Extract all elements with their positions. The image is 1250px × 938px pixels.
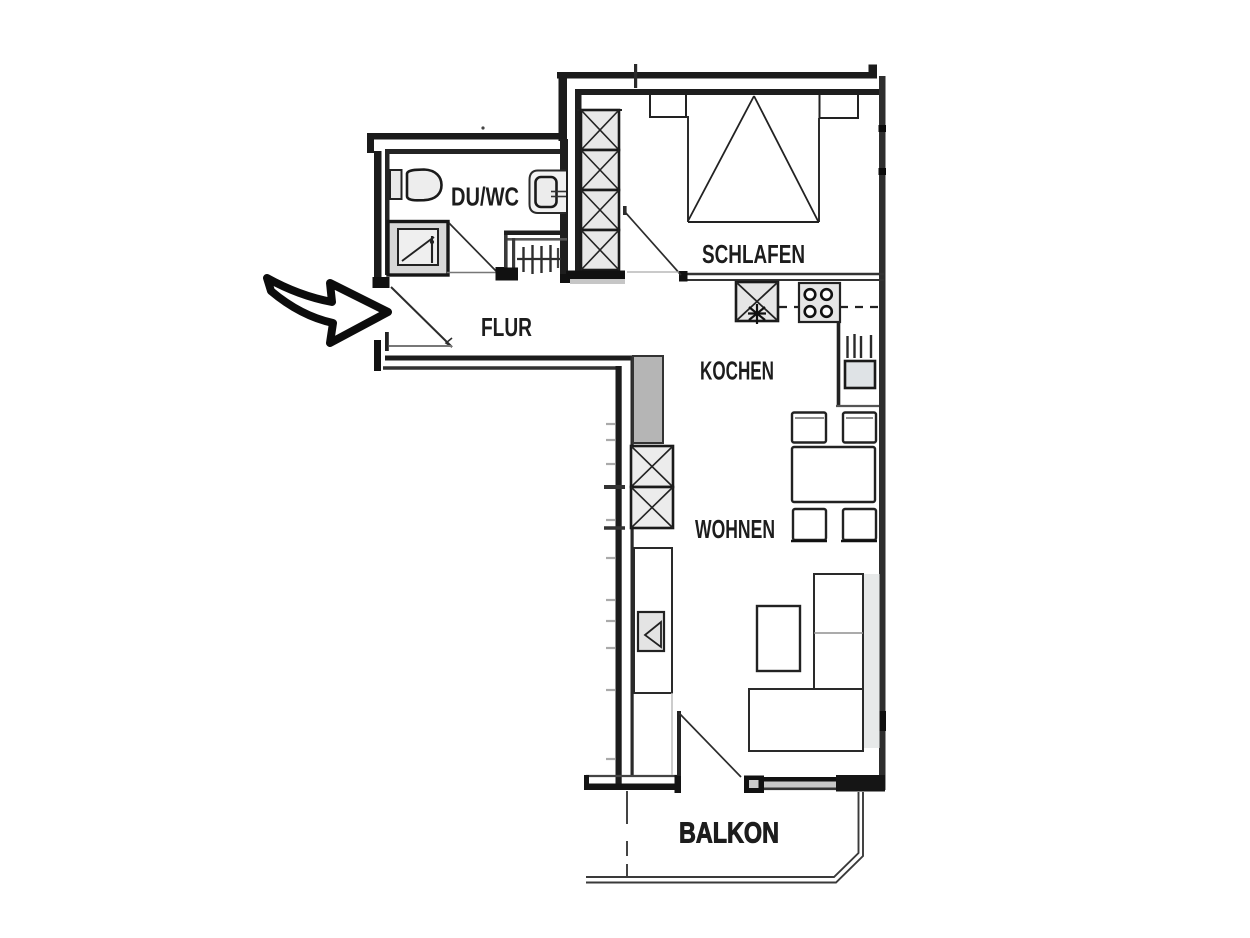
svg-text:DU/WC: DU/WC <box>451 182 519 212</box>
svg-text:SCHLAFEN: SCHLAFEN <box>702 239 805 269</box>
svg-text:KOCHEN: KOCHEN <box>700 356 774 386</box>
svg-text:WOHNEN: WOHNEN <box>695 514 775 544</box>
svg-text:FLUR: FLUR <box>481 312 532 342</box>
svg-text:BALKON: BALKON <box>679 818 779 850</box>
